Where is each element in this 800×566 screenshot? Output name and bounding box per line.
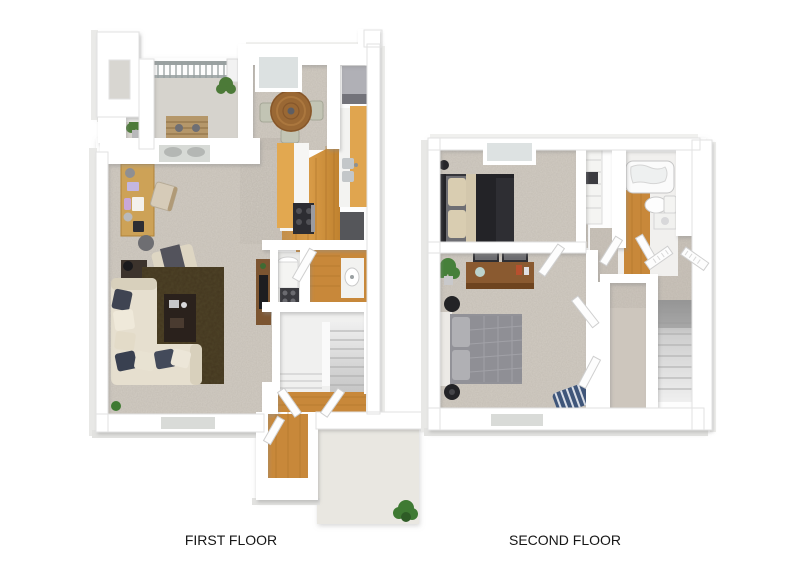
svg-text:SECOND FLOOR: SECOND FLOOR (509, 532, 621, 548)
svg-text:FIRST FLOOR: FIRST FLOOR (185, 532, 277, 548)
